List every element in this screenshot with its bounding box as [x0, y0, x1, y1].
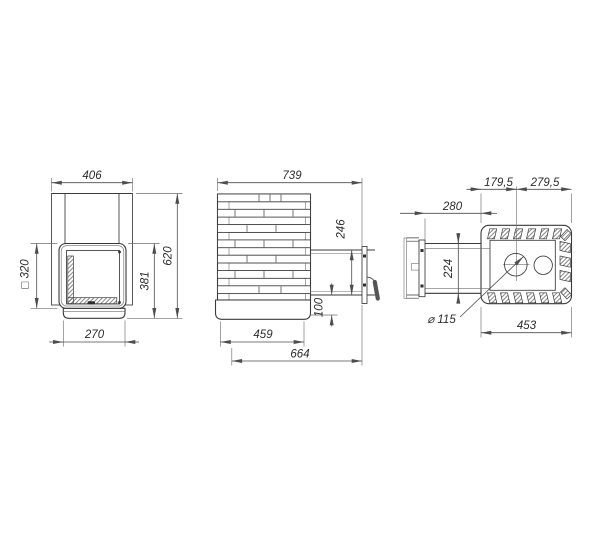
- firebox-door-opening: [67, 251, 120, 305]
- fuel-tunnel-top: [425, 244, 490, 294]
- dim-side-tunnel-height: 246: [336, 219, 348, 240]
- front-base: [63, 308, 125, 318]
- convector-slats: [218, 194, 311, 294]
- dim-side-length: 739: [282, 170, 302, 182]
- dim-side-base-length: 459: [253, 329, 273, 341]
- dim-top-chimney-offset-front: 179,5: [484, 177, 513, 189]
- dim-front-base-width: 270: [84, 329, 105, 341]
- dim-top-chimney-diameter: ⌀ 115: [427, 314, 456, 326]
- door-handle-grip: [375, 282, 378, 299]
- stove-technical-drawing: 406 620 381 □ 320 270: [0, 0, 600, 533]
- dim-top-tunnel-length: 280: [442, 201, 463, 213]
- door-latch-top: [412, 264, 420, 271]
- dim-side-total-length: 664: [290, 349, 309, 361]
- dim-front-door-square: □ 320: [20, 259, 32, 289]
- side-view: 739 246 100 459 664: [216, 170, 378, 365]
- dim-side-ash-height: 100: [314, 297, 326, 317]
- front-view: 406 620 381 □ 320 270: [20, 170, 183, 346]
- door-latch: [88, 301, 96, 304]
- dim-top-tunnel-width: 224: [443, 259, 455, 279]
- top-plate: [490, 240, 555, 290]
- door-hinge-bottom: [118, 301, 121, 304]
- top-view: 179,5 279,5 280 224 453 ⌀ 115: [400, 177, 572, 338]
- tunnel-door-plate-top: [419, 240, 425, 297]
- dim-top-chimney-offset-rear: 279,5: [530, 177, 560, 189]
- door-glass-edge: [68, 256, 74, 304]
- dim-front-height: 620: [163, 246, 175, 266]
- side-base: [216, 300, 311, 319]
- dim-front-width: 406: [82, 170, 102, 182]
- drawing-sheet: 406 620 381 □ 320 270: [0, 0, 600, 533]
- dim-top-body-width: 453: [517, 320, 537, 332]
- dim-front-door-height: 381: [140, 271, 152, 290]
- door-hinge-top: [118, 251, 121, 254]
